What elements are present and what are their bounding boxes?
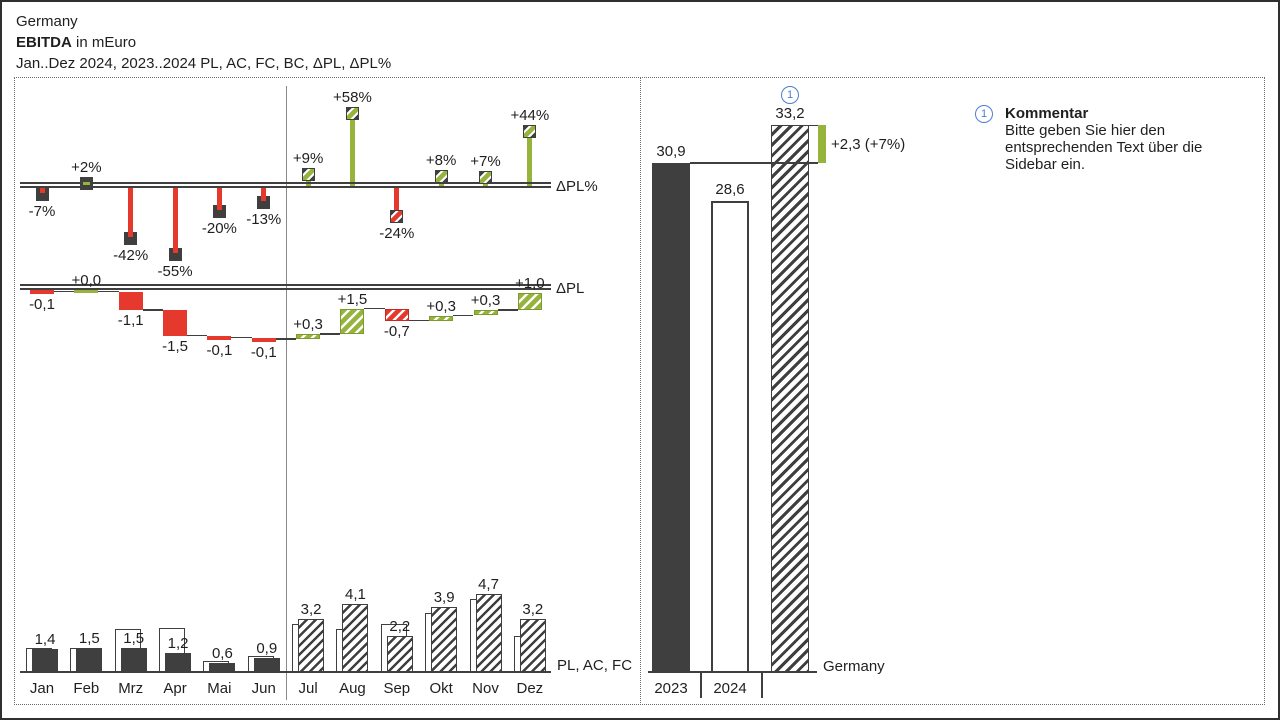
- month-label-Jan: Jan: [20, 681, 64, 697]
- pct-pin-Dez: [527, 131, 532, 186]
- pct-marker-Jul: [302, 168, 315, 181]
- delta-pl-bar-Mrz: [119, 292, 143, 311]
- waterfall-connector-Jul: [276, 338, 296, 340]
- delta-pl-label-Jan: -0,1: [16, 297, 68, 313]
- year-tick-2: [761, 673, 763, 698]
- value-label-Okt: 3,9: [419, 590, 469, 606]
- dpl-pct-axis-line-bottom: [20, 186, 551, 188]
- pct-marker-Sep: [390, 210, 403, 223]
- annotation-1-marker[interactable]: 1: [781, 86, 799, 104]
- waterfall-connector-Okt: [409, 320, 429, 322]
- pct-label-Jan: -7%: [14, 204, 70, 220]
- comment-ref-circle: 1: [975, 105, 993, 123]
- pct-label-Jul: +9%: [280, 151, 336, 167]
- pct-marker-Okt: [435, 170, 448, 183]
- fc-bar-Dez: [520, 619, 546, 673]
- value-label-Dez: 3,2: [508, 602, 558, 618]
- delta-pl-label-Jul: +0,3: [282, 317, 334, 333]
- delta-pl-bar-Jul: [296, 334, 320, 339]
- month-label-Feb: Feb: [64, 681, 108, 697]
- year-label-2023: 2023: [646, 681, 696, 697]
- month-label-Mai: Mai: [197, 681, 241, 697]
- year-tick-1: [700, 673, 702, 698]
- delta-pl-bar-Nov: [474, 310, 498, 315]
- pct-marker-tick-Feb: [83, 182, 90, 185]
- pct-pin-Mrz: [128, 186, 133, 239]
- pct-marker-Apr: [169, 248, 182, 261]
- monthly-baseline: [20, 671, 551, 673]
- report-page: Germany EBITDA in mEuro Jan..Dez 2024, 2…: [0, 0, 1280, 720]
- month-label-Jun: Jun: [242, 681, 286, 697]
- panel-divider-dotted: [640, 77, 641, 703]
- prev-year-reference-line: [690, 162, 818, 164]
- waterfall-connector-Sep: [364, 308, 384, 310]
- delta-pl-label-Dez: +1,0: [504, 276, 556, 292]
- value-label-Feb: 1,5: [64, 631, 114, 647]
- year-bar-fc: [771, 125, 809, 673]
- fc-bar-Nov: [476, 594, 502, 673]
- pct-marker-Aug: [346, 107, 359, 120]
- fc-bar-Jul: [298, 619, 324, 673]
- pct-label-Sep: -24%: [369, 226, 425, 242]
- pct-marker-Feb: [80, 177, 93, 190]
- pct-marker-tick-Jun: [261, 196, 266, 201]
- pct-marker-Mai: [213, 205, 226, 218]
- ac-bar-Apr: [165, 653, 191, 673]
- delta-pl-label-Jun: -0,1: [238, 345, 290, 361]
- waterfall-connector-Aug: [320, 333, 340, 335]
- value-label-Jan: 1,4: [20, 632, 70, 648]
- month-label-Aug: Aug: [330, 681, 374, 697]
- pct-label-Mrz: -42%: [103, 248, 159, 264]
- waterfall-connector-Feb: [54, 291, 74, 293]
- delta-pl-bar-Dez: [518, 293, 542, 310]
- year-label-2024: 2024: [705, 681, 755, 697]
- value-label-Nov: 4,7: [464, 577, 514, 593]
- pct-label-Feb: +2%: [58, 160, 114, 176]
- pct-label-Apr: -55%: [147, 264, 203, 280]
- fc-bar-Sep: [387, 636, 413, 673]
- pct-pin-Aug: [350, 114, 355, 187]
- value-label-Jun: 0,9: [242, 641, 292, 657]
- delta-pl-bar-Feb: [74, 290, 98, 293]
- waterfall-connector-Apr: [143, 309, 163, 311]
- delta-pl-bar-Sep: [385, 309, 409, 321]
- year-value-label-2024: 28,6: [705, 182, 755, 198]
- pct-label-Aug: +58%: [324, 90, 380, 106]
- ac-bar-Jan: [32, 649, 58, 673]
- waterfall-connector-Mrz: [98, 291, 118, 293]
- pct-marker-Mrz: [124, 232, 137, 245]
- month-label-Okt: Okt: [419, 681, 463, 697]
- pct-marker-tick-Mrz: [128, 232, 133, 237]
- delta-pl-bar-Okt: [429, 316, 453, 321]
- delta-pl-bar-Aug: [340, 309, 364, 335]
- value-label-Mai: 0,6: [197, 646, 247, 662]
- value-label-Aug: 4,1: [330, 587, 380, 603]
- value-label-Sep: 2,2: [375, 619, 425, 635]
- pct-label-Jun: -13%: [236, 212, 292, 228]
- delta-pl-label-Aug: +1,5: [326, 292, 378, 308]
- waterfall-connector-Mai: [187, 335, 207, 337]
- dpl-pct-axis-line-top: [20, 182, 551, 184]
- year-variance-bar: [818, 125, 826, 163]
- pct-marker-Jun: [257, 196, 270, 209]
- delta-pl-bar-Apr: [163, 310, 187, 336]
- delta-pl-label-Mrz: -1,1: [105, 313, 157, 329]
- pct-marker-tick-Jan: [40, 188, 45, 193]
- ac-bar-Feb: [76, 648, 102, 673]
- month-label-Apr: Apr: [153, 681, 197, 697]
- yearly-baseline: [648, 671, 817, 673]
- delta-pl-bar-Jan: [30, 290, 54, 294]
- month-label-Dez: Dez: [508, 681, 552, 697]
- waterfall-connector-Nov: [453, 315, 473, 317]
- pct-marker-Jan: [36, 188, 49, 201]
- pct-marker-Dez: [523, 125, 536, 138]
- year-value-label-fc: 33,2: [765, 106, 815, 122]
- month-label-Jul: Jul: [286, 681, 330, 697]
- month-label-Nov: Nov: [464, 681, 508, 697]
- waterfall-connector-Jun: [231, 337, 251, 339]
- delta-pl-bar-Mai: [207, 336, 231, 340]
- delta-pl-label-Sep: -0,7: [371, 324, 423, 340]
- value-label-Mrz: 1,5: [109, 631, 159, 647]
- month-label-Mrz: Mrz: [109, 681, 153, 697]
- value-label-Jul: 3,2: [286, 602, 336, 618]
- pct-marker-tick-Apr: [173, 248, 178, 253]
- ac-bar-Mrz: [121, 648, 147, 673]
- delta-pl-label-Feb: +0,0: [60, 273, 112, 289]
- fc-bar-Okt: [431, 607, 457, 673]
- year-bar-2023: [652, 163, 690, 673]
- pct-pin-Apr: [173, 186, 178, 255]
- fc-bar-Aug: [342, 604, 368, 673]
- year-value-label-2023: 30,9: [646, 144, 696, 160]
- waterfall-connector-Dez: [498, 309, 518, 311]
- pct-label-Dez: +44%: [502, 108, 558, 124]
- year-bar-2024: [711, 201, 749, 673]
- delta-pl-label-Nov: +0,3: [460, 293, 512, 309]
- month-label-Sep: Sep: [375, 681, 419, 697]
- pct-marker-Nov: [479, 171, 492, 184]
- value-label-Apr: 1,2: [153, 636, 203, 652]
- pct-marker-tick-Mai: [217, 205, 222, 210]
- delta-pl-bar-Jun: [252, 338, 276, 342]
- pct-label-Nov: +7%: [458, 154, 514, 170]
